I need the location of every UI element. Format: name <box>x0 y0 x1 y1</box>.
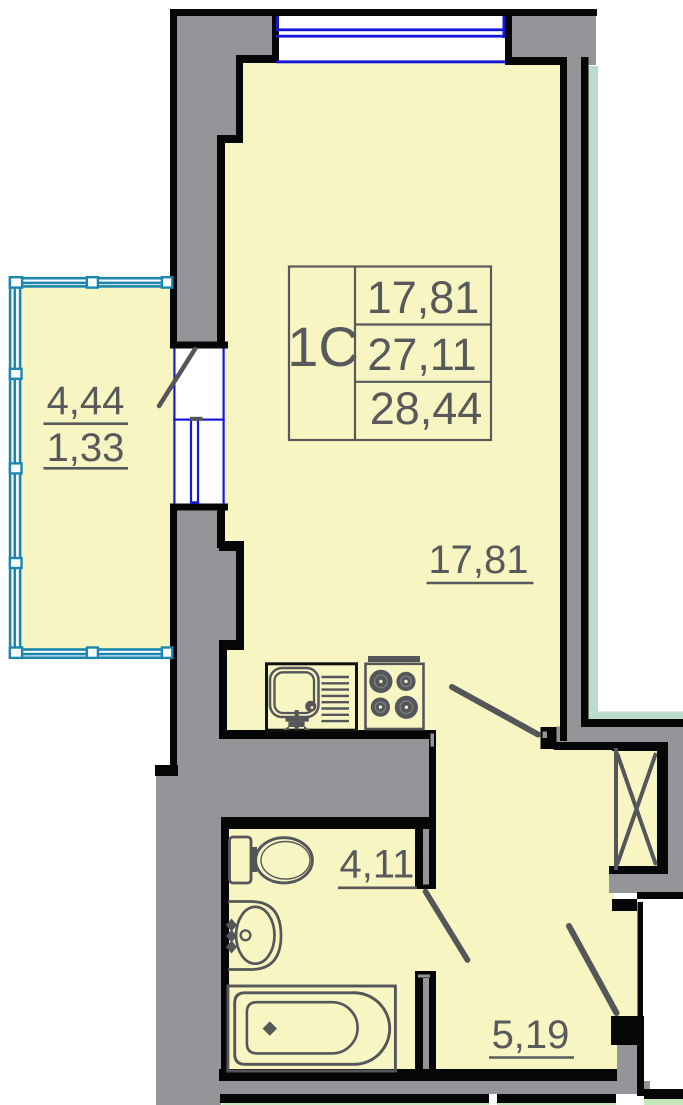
svg-text:17,81: 17,81 <box>367 272 480 323</box>
svg-text:17,81: 17,81 <box>428 538 528 582</box>
svg-text:4,44: 4,44 <box>47 379 125 423</box>
svg-text:4,11: 4,11 <box>340 843 415 887</box>
svg-text:1C: 1C <box>287 315 359 378</box>
svg-text:5,19: 5,19 <box>492 1013 570 1057</box>
svg-text:1,33: 1,33 <box>47 426 125 470</box>
svg-text:27,11: 27,11 <box>367 329 476 380</box>
svg-text:28,44: 28,44 <box>370 383 483 434</box>
